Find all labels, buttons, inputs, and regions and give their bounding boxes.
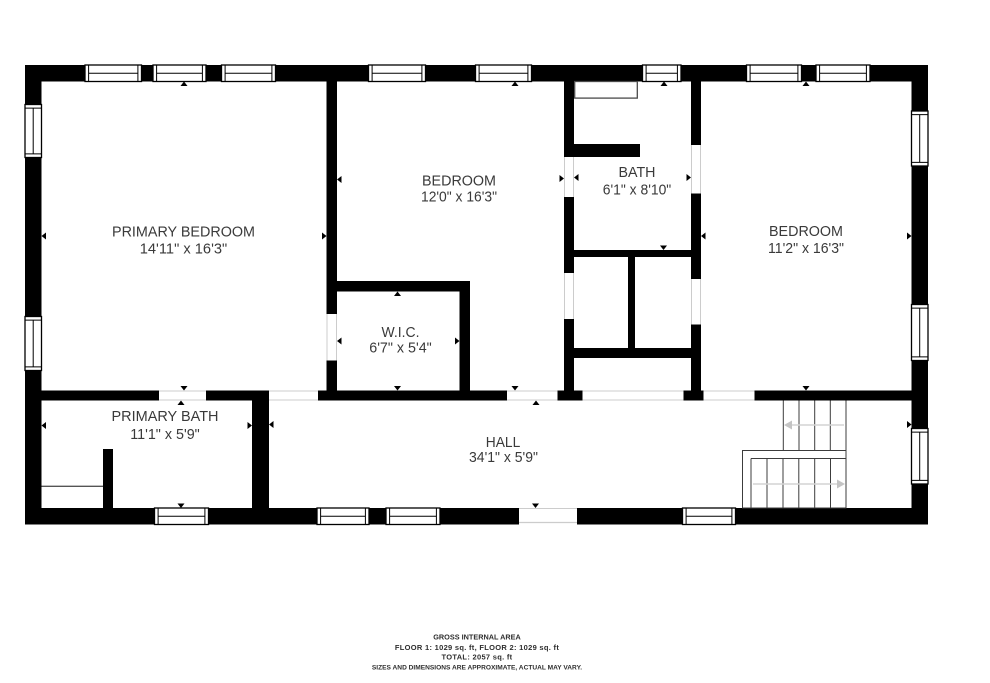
svg-text:11'1" x 5'9": 11'1" x 5'9" (130, 426, 200, 443)
svg-text:BEDROOM: BEDROOM (422, 173, 496, 190)
svg-text:34'1" x 5'9": 34'1" x 5'9" (469, 449, 538, 466)
svg-text:BATH: BATH (619, 164, 656, 181)
svg-text:TOTAL: 2057 sq. ft: TOTAL: 2057 sq. ft (442, 652, 513, 661)
svg-text:12'0" x 16'3": 12'0" x 16'3" (421, 189, 497, 206)
svg-text:BEDROOM: BEDROOM (769, 223, 843, 240)
svg-text:GROSS INTERNAL AREA: GROSS INTERNAL AREA (433, 633, 521, 642)
svg-text:6'1" x 8'10": 6'1" x 8'10" (603, 182, 672, 199)
svg-text:SIZES AND DIMENSIONS ARE APPRO: SIZES AND DIMENSIONS ARE APPROXIMATE, AC… (372, 665, 582, 672)
svg-text:FLOOR 1: 1029 sq. ft, FLOOR 2:: FLOOR 1: 1029 sq. ft, FLOOR 2: 1029 sq. … (395, 643, 560, 652)
svg-text:W.I.C.: W.I.C. (382, 324, 420, 341)
svg-text:11'2" x 16'3": 11'2" x 16'3" (768, 240, 844, 257)
svg-text:PRIMARY BATH: PRIMARY BATH (112, 408, 219, 425)
svg-text:6'7" x 5'4": 6'7" x 5'4" (369, 340, 432, 357)
svg-text:14'11" x 16'3": 14'11" x 16'3" (140, 241, 228, 258)
svg-text:PRIMARY BEDROOM: PRIMARY BEDROOM (112, 224, 255, 241)
